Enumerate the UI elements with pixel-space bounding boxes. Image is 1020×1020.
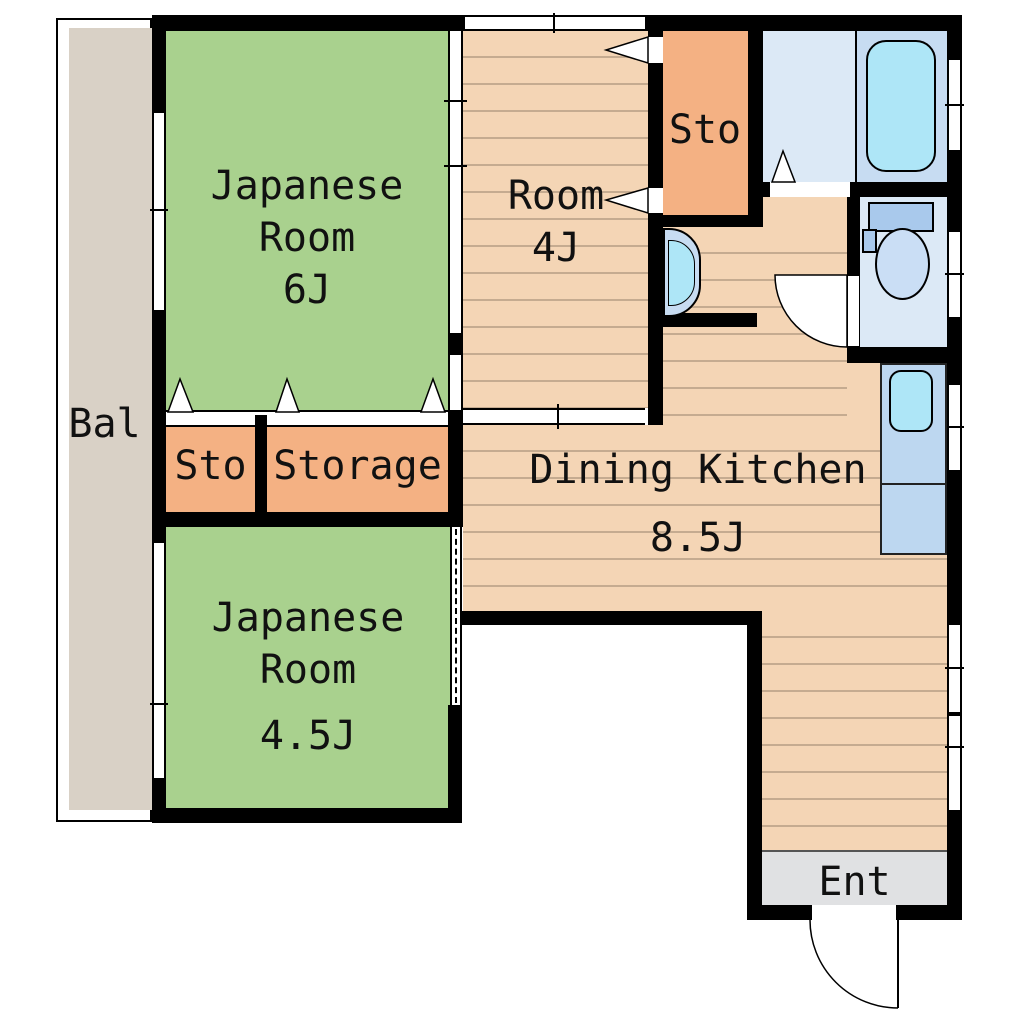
room-name: Storage <box>273 440 442 492</box>
room-name: Bal <box>68 398 140 450</box>
room-area: 6J <box>283 264 331 316</box>
wall-dk-left-lower <box>747 611 762 920</box>
hallway-floor-upper <box>763 197 847 227</box>
sliding-door-4j-dk[interactable] <box>463 408 645 425</box>
wall-sto-storage-divider <box>255 415 267 512</box>
wall-storage-right <box>448 410 463 527</box>
entrance-door-arc <box>810 920 898 1008</box>
sash-mark <box>945 104 964 106</box>
wall-toilet-left <box>847 197 860 275</box>
room-area: 4J <box>532 222 580 274</box>
label-sto-lower: Sto <box>166 440 255 492</box>
room-name: Japanese <box>212 592 405 644</box>
room-name: Sto <box>174 440 246 492</box>
door-opening-4j-lower[interactable] <box>648 188 663 213</box>
partition-dashed-line <box>455 529 457 703</box>
toilet-handle-icon <box>862 229 877 253</box>
sash-mark <box>945 667 964 669</box>
room-name: Room <box>260 644 356 696</box>
sash-mark <box>557 404 559 429</box>
window-6j-left <box>152 113 166 310</box>
room-name: Room <box>259 212 355 264</box>
door-opening-washroom[interactable] <box>770 182 850 197</box>
wall-sto-upper-bottom <box>648 215 763 227</box>
wall-45j-right <box>448 705 462 823</box>
wall-top-left <box>152 15 465 31</box>
window-bathroom-right <box>947 60 962 150</box>
window-4j-top <box>465 15 645 31</box>
label-japanese-room-6j: Japanese Room 6J <box>166 160 448 316</box>
label-room-4j: Room 4J <box>463 170 649 274</box>
door-opening-4j-upper[interactable] <box>648 37 663 63</box>
wall-45j-bottom <box>152 808 462 823</box>
sash-mark <box>444 100 467 102</box>
toilet-bowl-icon <box>875 228 930 300</box>
wall-dk-bottom <box>462 611 762 625</box>
dining-kitchen-floor-lower <box>762 611 947 850</box>
label-japanese-room-45j: Japanese Room 4.5J <box>166 592 450 762</box>
kitchen-sink-icon <box>889 370 933 432</box>
wall-storage-bottom <box>152 512 462 527</box>
window-kitchen-right <box>947 385 962 470</box>
room-area: 4.5J <box>260 710 356 762</box>
toilet-door-leaf[interactable] <box>847 275 860 347</box>
label-sto-upper: Sto <box>662 104 748 156</box>
closet-sliding-door-6j[interactable] <box>166 410 448 427</box>
wall-top-right <box>645 15 962 31</box>
wall-toilet-bottom <box>847 347 962 363</box>
washroom-floor <box>762 31 855 182</box>
room-name: Japanese <box>211 160 404 212</box>
label-entrance: Ent <box>762 856 947 908</box>
label-storage: Storage <box>267 440 448 492</box>
window-dk-right-1 <box>947 625 962 712</box>
sash-mark <box>945 273 964 275</box>
floor-plan: Japanese Room 6J Room 4J Sto Sto Storage… <box>0 0 1020 1020</box>
bathtub-icon <box>866 40 936 172</box>
window-45j-left <box>152 543 166 778</box>
window-toilet-right <box>947 232 962 317</box>
label-balcony: Bal <box>56 398 153 450</box>
room-name: Ent <box>818 856 890 908</box>
sash-mark <box>945 426 964 428</box>
window-dk-right-2 <box>947 716 962 810</box>
room-name: Dining Kitchen <box>529 444 866 496</box>
sash-mark <box>945 746 964 748</box>
room-name: Sto <box>669 104 741 156</box>
room-name: Room <box>508 170 604 222</box>
room-area: 8.5J <box>650 512 746 564</box>
sash-mark <box>553 13 555 33</box>
wall-sto-upper-right <box>748 31 763 227</box>
label-dining-kitchen: Dining Kitchen 8.5J <box>463 444 933 564</box>
wall <box>448 333 463 355</box>
